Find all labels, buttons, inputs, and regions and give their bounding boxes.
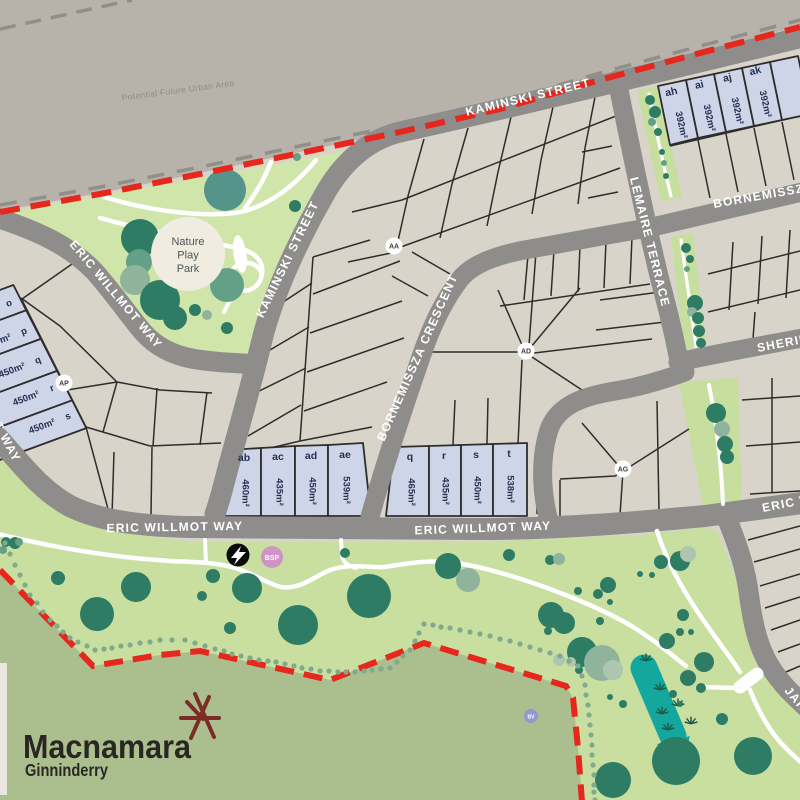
svg-text:Nature: Nature xyxy=(171,236,204,248)
svg-text:ae: ae xyxy=(339,449,351,461)
svg-text:AA: AA xyxy=(389,244,399,251)
svg-text:BV: BV xyxy=(528,715,536,721)
svg-text:450m²: 450m² xyxy=(306,477,317,504)
svg-text:t: t xyxy=(507,448,511,460)
svg-text:s: s xyxy=(473,449,479,461)
svg-text:ab: ab xyxy=(238,452,250,464)
svg-text:539m²: 539m² xyxy=(340,476,351,503)
svg-text:435m²: 435m² xyxy=(273,478,284,505)
svg-text:435m²: 435m² xyxy=(439,477,450,504)
svg-text:ac: ac xyxy=(272,451,284,463)
svg-text:AP: AP xyxy=(59,381,69,388)
svg-text:Play: Play xyxy=(177,250,199,262)
svg-text:460m²: 460m² xyxy=(239,479,250,506)
svg-text:ad: ad xyxy=(305,450,317,462)
svg-text:AD: AD xyxy=(521,349,531,356)
svg-text:r: r xyxy=(442,450,446,462)
svg-text:Park: Park xyxy=(177,263,200,275)
svg-text:Ginninderry: Ginninderry xyxy=(25,760,108,780)
svg-text:AG: AG xyxy=(618,467,629,474)
svg-text:ERIC WILLMOT WAY: ERIC WILLMOT WAY xyxy=(106,519,243,535)
svg-text:q: q xyxy=(407,451,413,463)
svg-text:450m²: 450m² xyxy=(471,476,482,503)
svg-text:BSP: BSP xyxy=(265,555,280,562)
svg-text:465m²: 465m² xyxy=(405,478,416,505)
svg-text:538m²: 538m² xyxy=(504,475,515,502)
